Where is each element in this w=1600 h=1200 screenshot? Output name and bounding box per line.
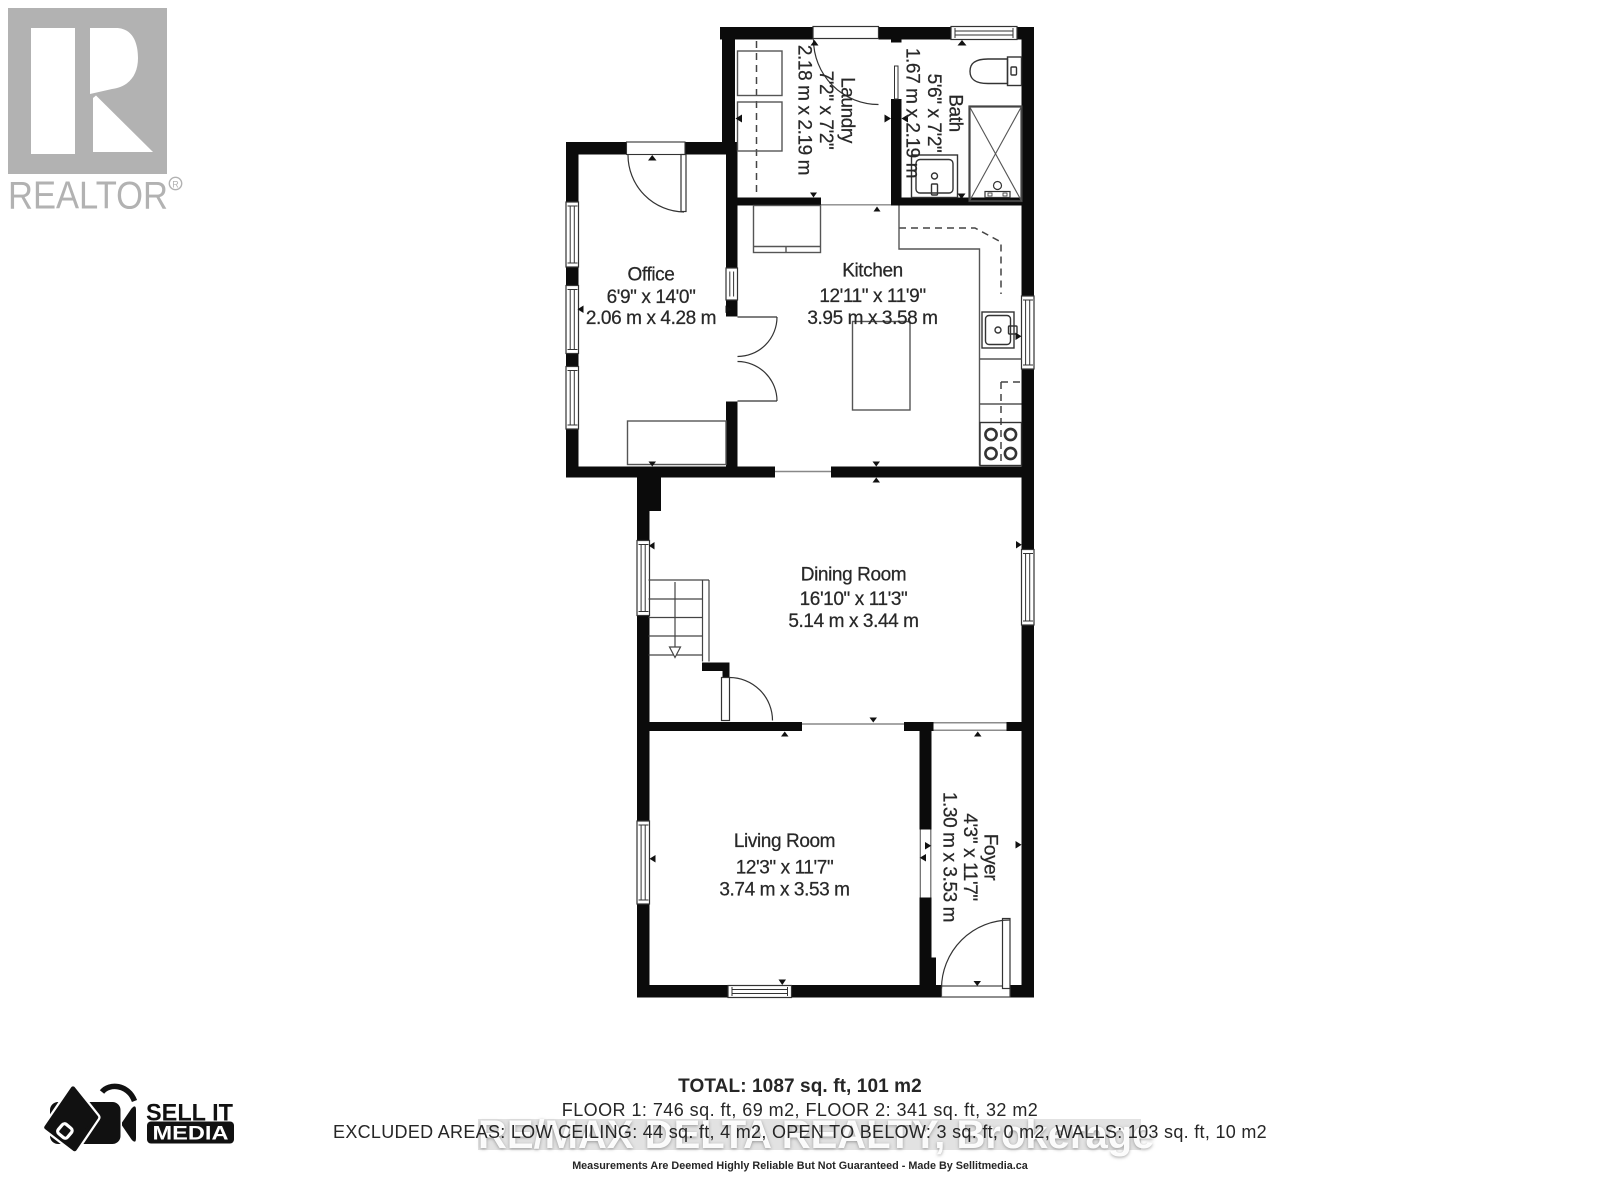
svg-text:16'10" x 11'3": 16'10" x 11'3" [800,589,908,610]
svg-text:12'3" x 11'7": 12'3" x 11'7" [736,858,834,879]
svg-text:Laundry: Laundry [837,77,858,144]
svg-text:REALTOR: REALTOR [8,175,168,218]
svg-text:3.95 m x 3.58 m: 3.95 m x 3.58 m [807,308,937,329]
svg-text:7'2" x 7'2": 7'2" x 7'2" [815,71,836,150]
svg-text:12'11" x 11'9": 12'11" x 11'9" [819,286,925,307]
svg-text:3.74 m x 3.53 m: 3.74 m x 3.53 m [719,880,849,901]
svg-text:5'6" x 7'2": 5'6" x 7'2" [923,74,944,153]
svg-text:4'3" x 11'7": 4'3" x 11'7" [959,813,980,900]
svg-text:R: R [172,180,179,190]
svg-text:2.06 m x 4.28 m: 2.06 m x 4.28 m [586,308,716,329]
svg-text:1.67 m x 2.19 m: 1.67 m x 2.19 m [902,48,923,178]
svg-text:Bath: Bath [945,94,966,132]
svg-text:Living Room: Living Room [734,831,835,852]
svg-text:6'9" x 14'0": 6'9" x 14'0" [607,287,696,308]
svg-text:1.30 m x 3.53 m: 1.30 m x 3.53 m [939,792,960,922]
svg-text:Kitchen: Kitchen [842,261,903,282]
svg-text:Foyer: Foyer [980,834,1001,882]
svg-text:2.18 m x 2.19 m: 2.18 m x 2.19 m [794,45,815,175]
svg-text:5.14 m x 3.44 m: 5.14 m x 3.44 m [788,611,918,632]
svg-text:Office: Office [628,265,675,286]
svg-text:Dining Room: Dining Room [801,565,906,586]
